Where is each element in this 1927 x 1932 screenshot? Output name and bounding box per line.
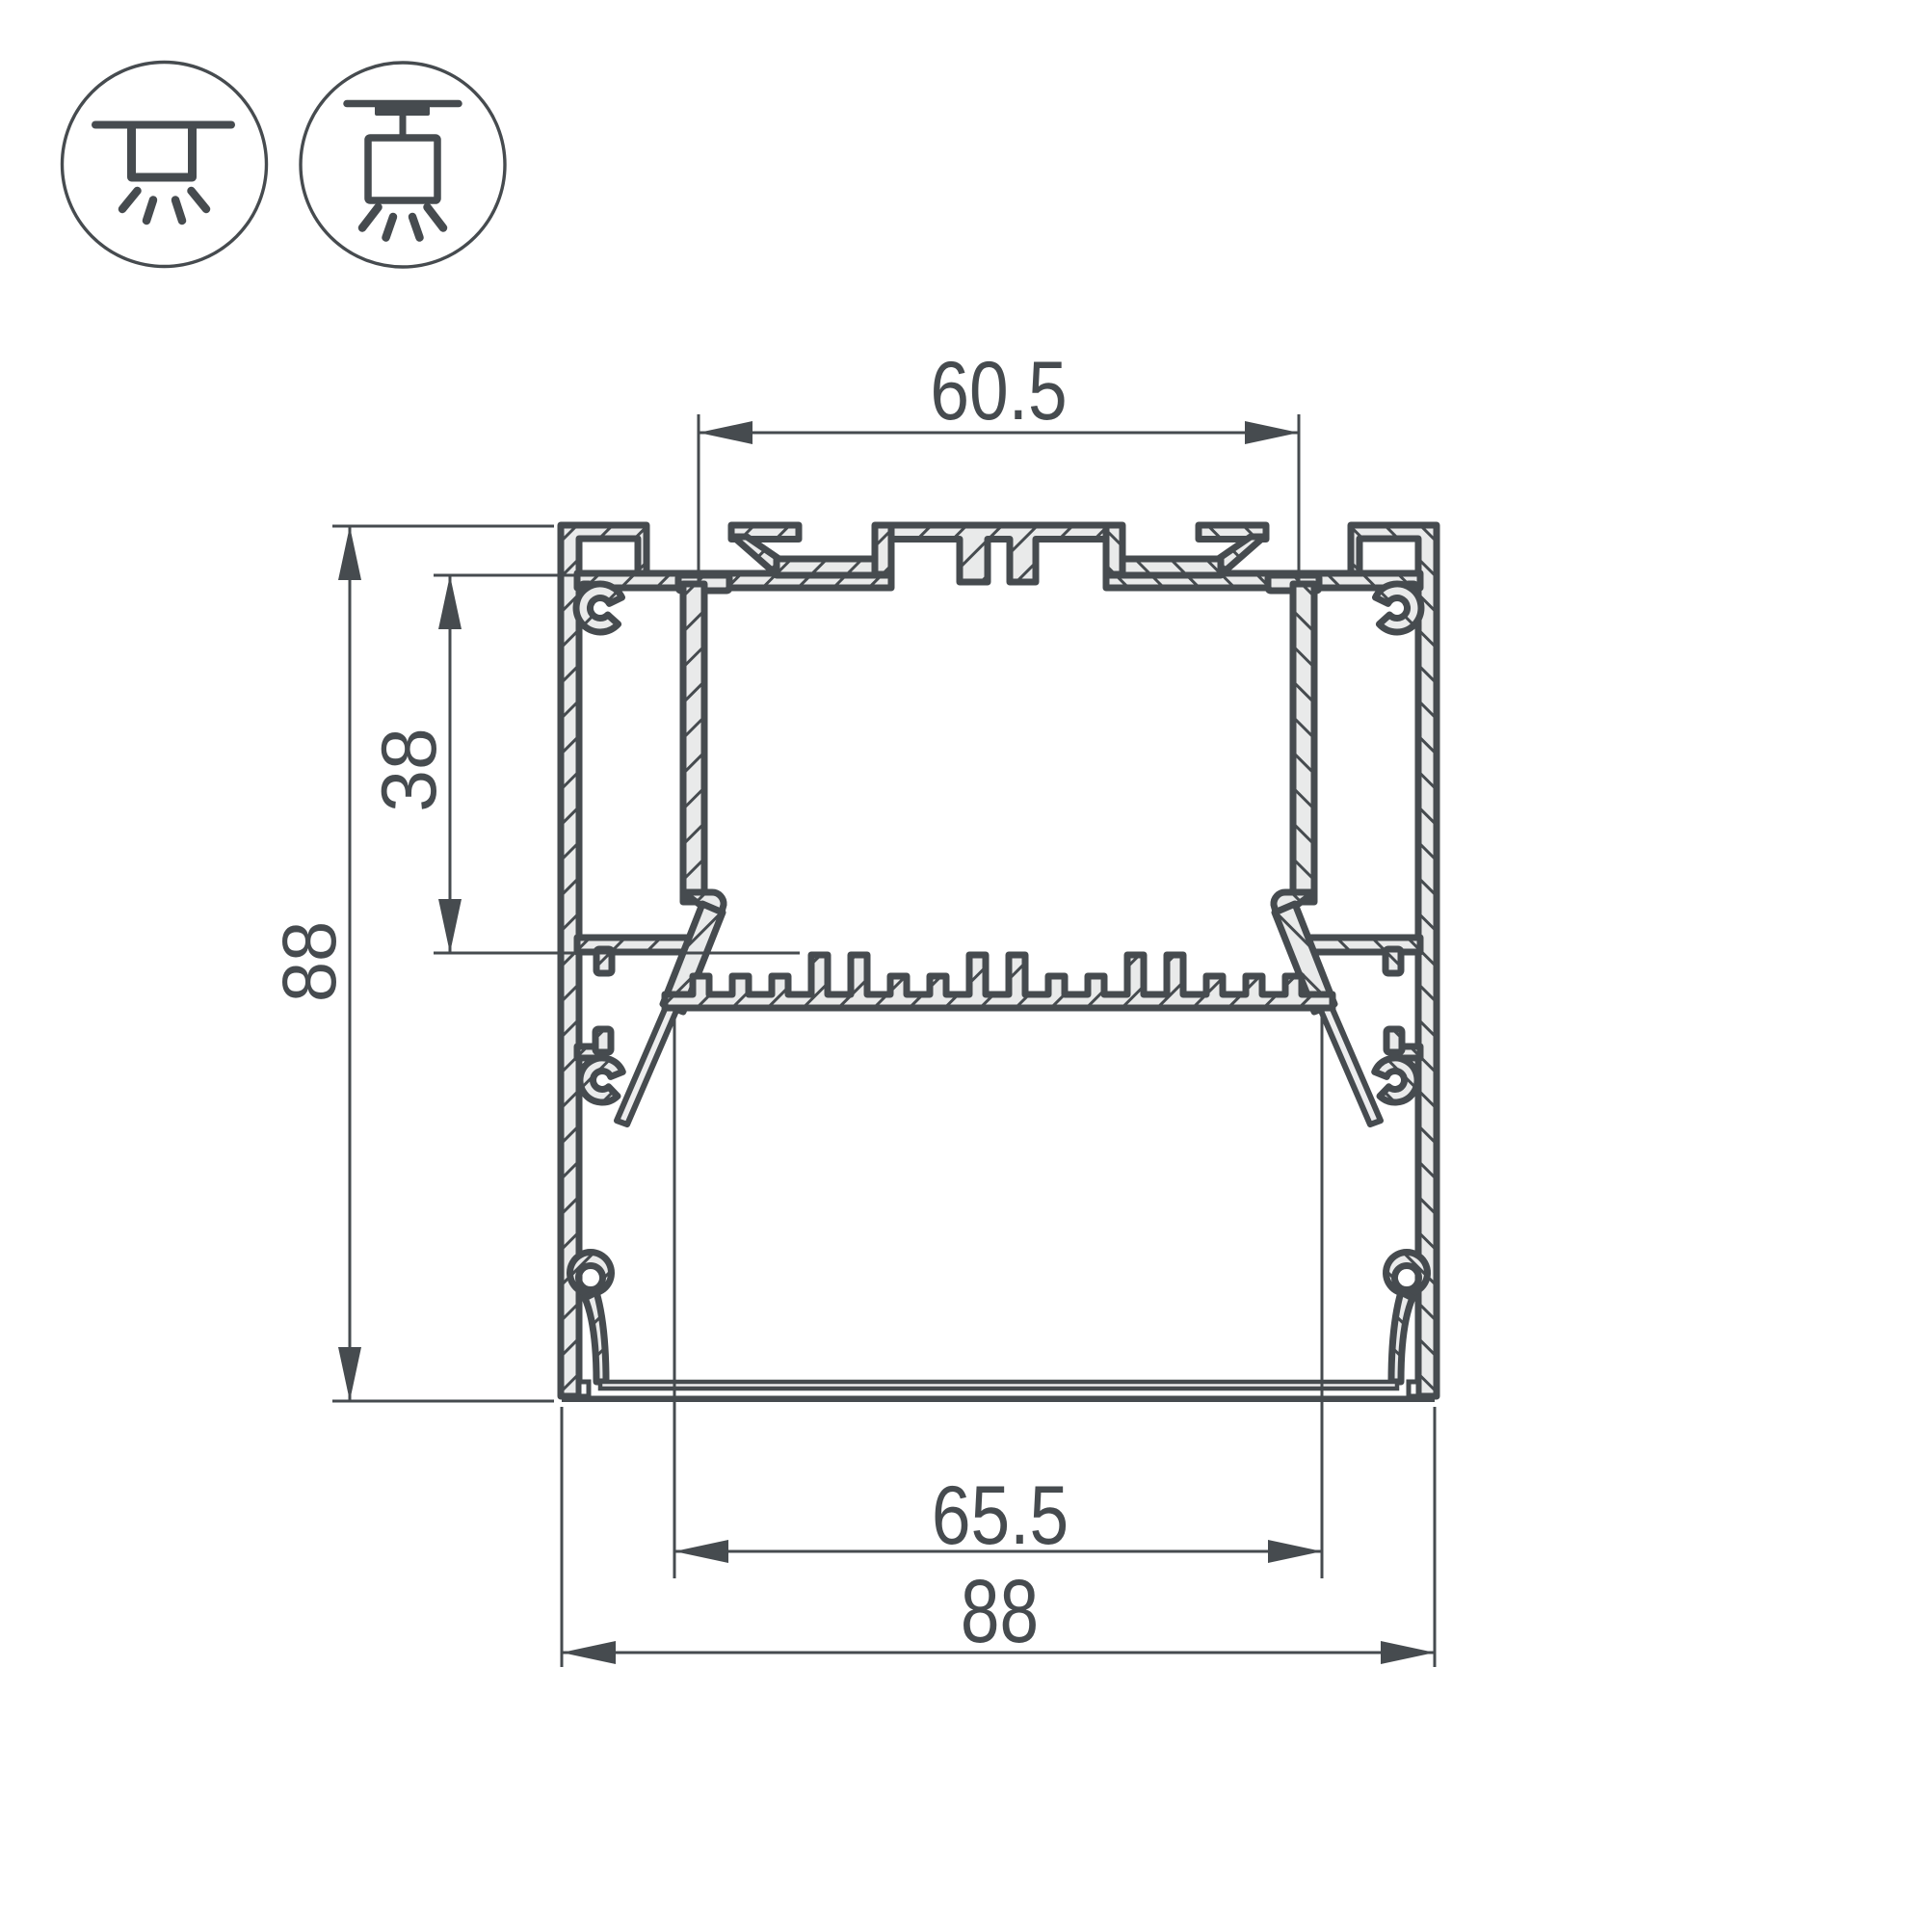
svg-text:60.5: 60.5: [930, 344, 1067, 437]
svg-text:88: 88: [268, 921, 353, 1002]
svg-text:88: 88: [961, 1560, 1039, 1661]
svg-text:65.5: 65.5: [932, 1469, 1069, 1561]
svg-text:38: 38: [365, 728, 452, 811]
